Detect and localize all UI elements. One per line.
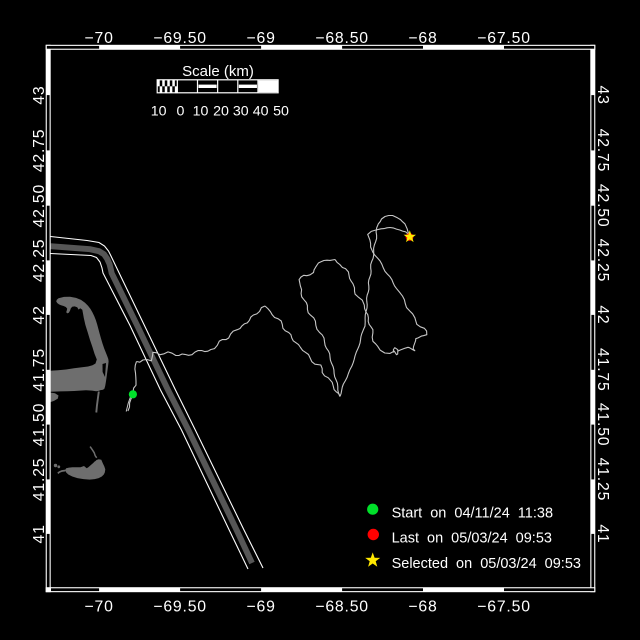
svg-text:42.75: 42.75 bbox=[31, 129, 48, 173]
svg-text:42: 42 bbox=[594, 305, 611, 324]
svg-text:Selected on 05/03/24 09:53: Selected on 05/03/24 09:53 bbox=[392, 556, 581, 572]
svg-text:−69.50: −69.50 bbox=[153, 30, 207, 47]
svg-text:−67.50: −67.50 bbox=[477, 598, 531, 615]
svg-text:42: 42 bbox=[31, 305, 48, 324]
svg-text:42.50: 42.50 bbox=[31, 184, 48, 228]
svg-text:42.75: 42.75 bbox=[594, 129, 611, 173]
svg-text:−67.50: −67.50 bbox=[477, 30, 531, 47]
svg-text:41: 41 bbox=[594, 524, 611, 543]
svg-text:42.25: 42.25 bbox=[31, 239, 48, 283]
svg-text:−69: −69 bbox=[246, 598, 275, 615]
svg-text:−70: −70 bbox=[84, 598, 113, 615]
svg-text:42.50: 42.50 bbox=[594, 184, 611, 228]
svg-text:−68.50: −68.50 bbox=[315, 30, 369, 47]
svg-text:43: 43 bbox=[594, 86, 611, 105]
svg-text:43: 43 bbox=[31, 86, 48, 105]
svg-text:10: 10 bbox=[193, 103, 209, 119]
svg-text:−69.50: −69.50 bbox=[153, 598, 207, 615]
svg-text:−70: −70 bbox=[84, 30, 113, 47]
svg-text:0: 0 bbox=[176, 103, 184, 119]
svg-text:20: 20 bbox=[213, 103, 229, 119]
svg-text:41.25: 41.25 bbox=[31, 458, 48, 502]
svg-text:41: 41 bbox=[31, 524, 48, 543]
svg-text:50: 50 bbox=[273, 103, 289, 119]
svg-text:Start on 04/11/24 11:38: Start on 04/11/24 11:38 bbox=[392, 505, 553, 521]
svg-text:10: 10 bbox=[151, 103, 167, 119]
svg-text:30: 30 bbox=[233, 103, 249, 119]
svg-text:41.50: 41.50 bbox=[594, 403, 611, 447]
svg-text:41.25: 41.25 bbox=[594, 458, 611, 502]
svg-text:−68: −68 bbox=[408, 30, 437, 47]
svg-text:Last on 05/03/24 09:53: Last on 05/03/24 09:53 bbox=[392, 531, 552, 547]
svg-text:42.25: 42.25 bbox=[594, 239, 611, 283]
svg-text:−68.50: −68.50 bbox=[315, 598, 369, 615]
svg-text:41.75: 41.75 bbox=[594, 348, 611, 392]
svg-text:−69: −69 bbox=[246, 30, 275, 47]
svg-text:40: 40 bbox=[253, 103, 269, 119]
svg-text:41.75: 41.75 bbox=[31, 348, 48, 392]
svg-text:41.50: 41.50 bbox=[31, 403, 48, 447]
svg-text:−68: −68 bbox=[408, 598, 437, 615]
svg-text:Scale (km): Scale (km) bbox=[182, 63, 254, 80]
